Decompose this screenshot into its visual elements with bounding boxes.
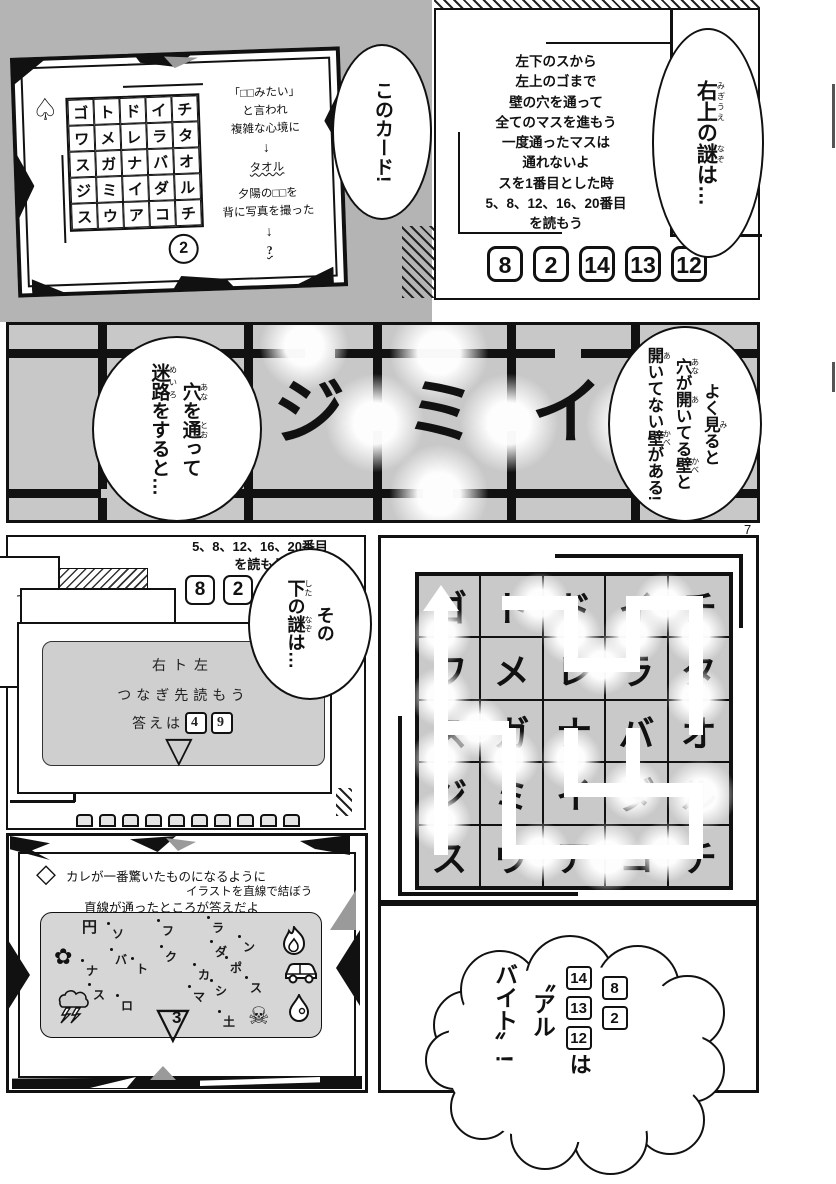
bubble-maze-left: 穴あなを通とおって 迷路めいろをすると… <box>92 336 262 522</box>
dot-letter: ク <box>165 948 177 965</box>
rules-line: 通れないよ <box>446 153 666 173</box>
number-box: 2 <box>602 1006 628 1030</box>
dot-letter: バ <box>115 951 127 968</box>
bubble-line: よく見みると <box>699 347 727 501</box>
grid-cell: ミ <box>96 176 123 203</box>
dot-letter: フ <box>162 922 174 939</box>
grid-cell: ル <box>174 173 201 200</box>
grid-cell: イ <box>122 175 149 202</box>
number-box: 8 <box>185 575 215 605</box>
hook-line <box>10 800 75 803</box>
skull-icon: ☠ <box>248 1002 270 1031</box>
bubble-line: 穴あなを通とおって <box>177 363 208 496</box>
wall-hole <box>555 349 581 358</box>
bubble-maze-right: よく見みると 穴あなが開あいてる壁かべと 開あいてない壁かべがある! <box>608 326 762 522</box>
bubble-maze-right-text: よく見みると 穴あなが開あいてる壁かべと 開あいてない壁かべがある! <box>643 347 728 501</box>
rules-line: 5、8、12、16、20番目 <box>446 194 666 214</box>
grid-cell: ゴ <box>67 99 94 126</box>
spade-icon: ♤ <box>31 92 59 128</box>
bubble-next-riddle: その 下したの謎なぞは… <box>248 548 372 700</box>
water-drop-icon <box>288 994 310 1022</box>
grid-cell: メ <box>94 124 121 151</box>
cloud-text: 82 141312は 〝アル バイト〟! <box>485 963 633 1148</box>
puzzle-card-photo: ♤ ゴトドイチワメレラタスガナバオジミイダルスウアコチ 「□□みたい」 と言われ… <box>10 46 348 297</box>
number-box: 2 <box>223 575 253 605</box>
bubble-next-riddle-text: その 下したの謎なぞは… <box>283 579 337 669</box>
dot-letter: ト <box>136 960 148 977</box>
tab <box>99 814 116 827</box>
dot-letter: ス <box>93 986 105 1003</box>
cloud-col-boxes2: 141312は <box>560 963 596 1148</box>
maze-big-char: ミ <box>405 377 477 449</box>
grid-cell: ナ <box>121 149 148 176</box>
number-box: 14 <box>566 966 592 990</box>
dot-letter: ナ <box>86 962 98 979</box>
tab <box>260 814 277 827</box>
rules-line: 左上のゴまで <box>446 72 666 92</box>
tab <box>122 814 139 827</box>
hole-glow <box>603 760 663 820</box>
triangle-number: 3 <box>172 1008 181 1028</box>
grid-cell: ジ <box>70 177 97 204</box>
cloud-col3: 〝アル <box>523 963 561 1148</box>
rules-text: 左下のスから 左上のゴまで 壁の穴を通って 全てのマスを進もう 一度通ったマスは… <box>446 52 666 234</box>
grid-cell: ダ <box>148 174 175 201</box>
tab <box>214 814 231 827</box>
bubble-this-card: このカード! <box>332 44 432 220</box>
bubble-top-right-text: 右上みぎうえの謎なぞは… <box>691 80 725 206</box>
grid-cell: タ <box>172 121 199 148</box>
dot-letter: ポ <box>230 959 242 976</box>
diamond-icon: ◇ <box>36 858 56 889</box>
bubble-line: その <box>313 579 337 669</box>
grid-cell: ス <box>71 203 98 230</box>
grid-cell: バ <box>147 148 174 175</box>
triangle-marker: ▽ <box>165 732 193 768</box>
grid-cell: コ <box>149 200 176 227</box>
grid-cell: イ <box>145 96 172 123</box>
bubble-line: 下したの謎なぞは… <box>283 579 312 669</box>
bubble-this-card-text: このカード! <box>369 81 395 182</box>
hole-glow <box>479 729 539 789</box>
tab <box>168 814 185 827</box>
mid-hatch-corner <box>336 788 352 816</box>
dot-letter: ソ <box>112 925 124 942</box>
hook-line-v <box>73 792 76 802</box>
dot-letter: カ <box>198 966 210 983</box>
bubble-line: 穴あなが開あいてる壁かべと <box>671 347 699 501</box>
tab <box>191 814 208 827</box>
dot-letter: シ <box>215 982 227 999</box>
card-letter-grid: ゴトドイチワメレラタスガナバオジミイダルスウアコチ <box>65 93 204 232</box>
grid-cell: メ <box>480 637 542 699</box>
number-box: 8 <box>487 246 523 282</box>
bubble-line: 開あいてない壁かべがある! <box>643 347 671 501</box>
hole-glow <box>635 822 695 882</box>
storm-icon <box>52 988 92 1024</box>
dot-letter: 円 <box>82 916 97 937</box>
grid-cell: レ <box>120 123 147 150</box>
car-icon <box>283 960 319 984</box>
grid-cell: ラ <box>146 122 173 149</box>
rules-line: 左下のスから <box>446 52 666 72</box>
dot-letter: ロ <box>121 997 133 1014</box>
number-box: 9 <box>211 712 233 734</box>
hole-glow <box>411 791 471 851</box>
cloud-bubble: 82 141312は 〝アル バイト〟! <box>425 935 725 1175</box>
grid-cell: ワ <box>68 125 95 152</box>
cloud-boxes2: 141312 <box>567 963 592 1053</box>
grid-cell: ア <box>123 201 150 228</box>
manga-page: ♤ ゴトドイチワメレラタスガナバオジミイダルスウアコチ 「□□みたい」 と言われ… <box>0 0 836 1184</box>
bubble-maze-left-text: 穴あなを通とおって 迷路めいろをすると… <box>146 363 208 496</box>
cloud-suffix: は <box>567 1053 592 1075</box>
flower-icon: ✿ <box>54 944 72 970</box>
cloud-col4: バイト〟! <box>485 963 523 1148</box>
hole-glow <box>411 604 471 664</box>
hole-glow <box>666 604 726 664</box>
dot-letter: マ <box>193 988 205 1005</box>
card-clue-block: 「□□みたい」 と言われ 複雑な心境に ↓ タオル 夕陽の□□を 背に写真を撮っ… <box>205 83 329 263</box>
dot-letter: ラ <box>212 919 224 936</box>
bubble-top-right: 右上みぎうえの謎なぞは… <box>652 28 764 258</box>
tab <box>237 814 254 827</box>
card-number: 2 <box>179 240 188 257</box>
grid-cell: ト <box>93 98 120 125</box>
hole-glow <box>541 729 601 789</box>
dot-letter: ス <box>250 979 262 996</box>
fire-icon <box>280 926 308 956</box>
number-box: 12 <box>566 1026 592 1050</box>
grid-cell: オ <box>173 147 200 174</box>
cloud-col-boxes1: 82 <box>597 963 633 1148</box>
rules-line: スを1番目とした時 <box>446 174 666 194</box>
grid-cell: チ <box>171 95 198 122</box>
grid-cell: ウ <box>97 202 124 229</box>
grid-cell: ガ <box>95 150 122 177</box>
dot-letter: ン <box>243 938 255 955</box>
number-box: 14 <box>579 246 615 282</box>
page-edge-mark <box>832 362 835 392</box>
grid-cell: チ <box>175 199 202 226</box>
maze-big-char: ジ <box>273 377 345 449</box>
hole-glow <box>666 760 736 830</box>
bubble-line: 迷路めいろをすると… <box>146 363 177 496</box>
rules-line: 一度通ったマスは <box>446 133 666 153</box>
number-box: 8 <box>602 976 628 1000</box>
number-box: 13 <box>566 996 592 1020</box>
rules-line: 全てのマスを進もう <box>446 113 666 133</box>
hole-glow <box>572 822 642 892</box>
hole-glow <box>510 822 570 882</box>
rules-line: 壁の穴を通って <box>446 93 666 113</box>
tab <box>76 814 93 827</box>
tab <box>283 814 300 827</box>
rules-line: を読もう <box>446 214 666 234</box>
page-edge-mark <box>832 84 835 148</box>
tab <box>145 814 162 827</box>
maze-big-char: イ <box>531 377 603 449</box>
number-box: 13 <box>625 246 661 282</box>
number-box: 2 <box>533 246 569 282</box>
grid-cell: ド <box>119 97 146 124</box>
dot-letter: 土 <box>223 1013 235 1030</box>
hole-glow <box>666 667 726 727</box>
grid-cell: ス <box>69 151 96 178</box>
triangle-3-marker: ▽ 3 <box>156 1002 190 1046</box>
